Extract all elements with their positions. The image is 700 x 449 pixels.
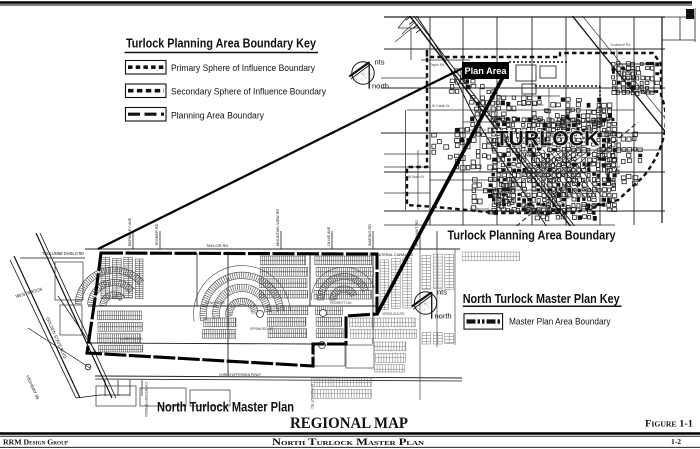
svg-text:Tuolumne Rd: Tuolumne Rd <box>610 43 630 47</box>
svg-text:CHRISTOFFERSEN: CHRISTOFFERSEN <box>144 382 148 417</box>
svg-text:OLIVE AVE: OLIVE AVE <box>327 226 331 246</box>
svg-text:PEDRETTI AV: PEDRETTI AV <box>330 301 353 305</box>
svg-text:North Turlock Master Plan: North Turlock Master Plan <box>272 437 425 447</box>
svg-text:nts: nts <box>375 57 385 66</box>
svg-text:North Turlock Master Plan: North Turlock Master Plan <box>157 400 294 415</box>
svg-text:Master Plan Area Boundary: Master Plan Area Boundary <box>509 317 611 328</box>
svg-text:VERDUGA RD: VERDUGA RD <box>382 312 405 316</box>
svg-text:1-2: 1-2 <box>671 437 681 446</box>
svg-text:north: north <box>372 82 389 91</box>
svg-text:RRM Design Group: RRM Design Group <box>3 438 68 447</box>
svg-text:Turlock Planning Area Boundary: Turlock Planning Area Boundary <box>448 227 617 242</box>
svg-text:W Main St: W Main St <box>408 175 424 179</box>
svg-text:Planning Area Boundary: Planning Area Boundary <box>171 111 264 122</box>
svg-text:nts: nts <box>437 287 447 296</box>
svg-text:Turlock Planning Area Boundary: Turlock Planning Area Boundary Key <box>126 36 317 51</box>
svg-text:Primary Sphere of Influence Bo: Primary Sphere of Influence Boundary <box>171 63 315 74</box>
svg-text:Taylor Rd: Taylor Rd <box>430 63 444 67</box>
svg-text:SPRINGER DR: SPRINGER DR <box>250 327 274 331</box>
svg-text:AMBERWOOD: AMBERWOOD <box>120 337 143 341</box>
svg-text:WARING RD: WARING RD <box>368 224 372 246</box>
svg-text:N WALNUT RD: N WALNUT RD <box>310 384 314 409</box>
svg-text:TUOLUMNE DIABLO RD: TUOLUMNE DIABLO RD <box>42 251 84 256</box>
svg-text:REGIONAL MAP: REGIONAL MAP <box>290 415 409 432</box>
svg-text:Plan Area: Plan Area <box>465 66 508 77</box>
svg-text:GENEVA DR: GENEVA DR <box>205 301 225 305</box>
svg-text:W Canal Dr: W Canal Dr <box>432 104 450 108</box>
svg-text:north: north <box>435 312 452 321</box>
svg-text:CHRISTOFFERSEN PKWY: CHRISTOFFERSEN PKWY <box>219 372 261 377</box>
svg-text:TEGNER RD: TEGNER RD <box>155 223 159 246</box>
svg-text:North Turlock Master Plan Key: North Turlock Master Plan Key <box>463 292 620 306</box>
svg-text:TAYLOR RD: TAYLOR RD <box>206 243 228 248</box>
svg-text:MOUNTAIN VIEW RD: MOUNTAIN VIEW RD <box>276 208 280 246</box>
svg-text:Secondary Sphere of Influence: Secondary Sphere of Influence Boundary <box>171 87 326 98</box>
svg-text:TURLOCK: TURLOCK <box>496 128 600 151</box>
svg-text:Figure 1-1: Figure 1-1 <box>645 420 693 430</box>
